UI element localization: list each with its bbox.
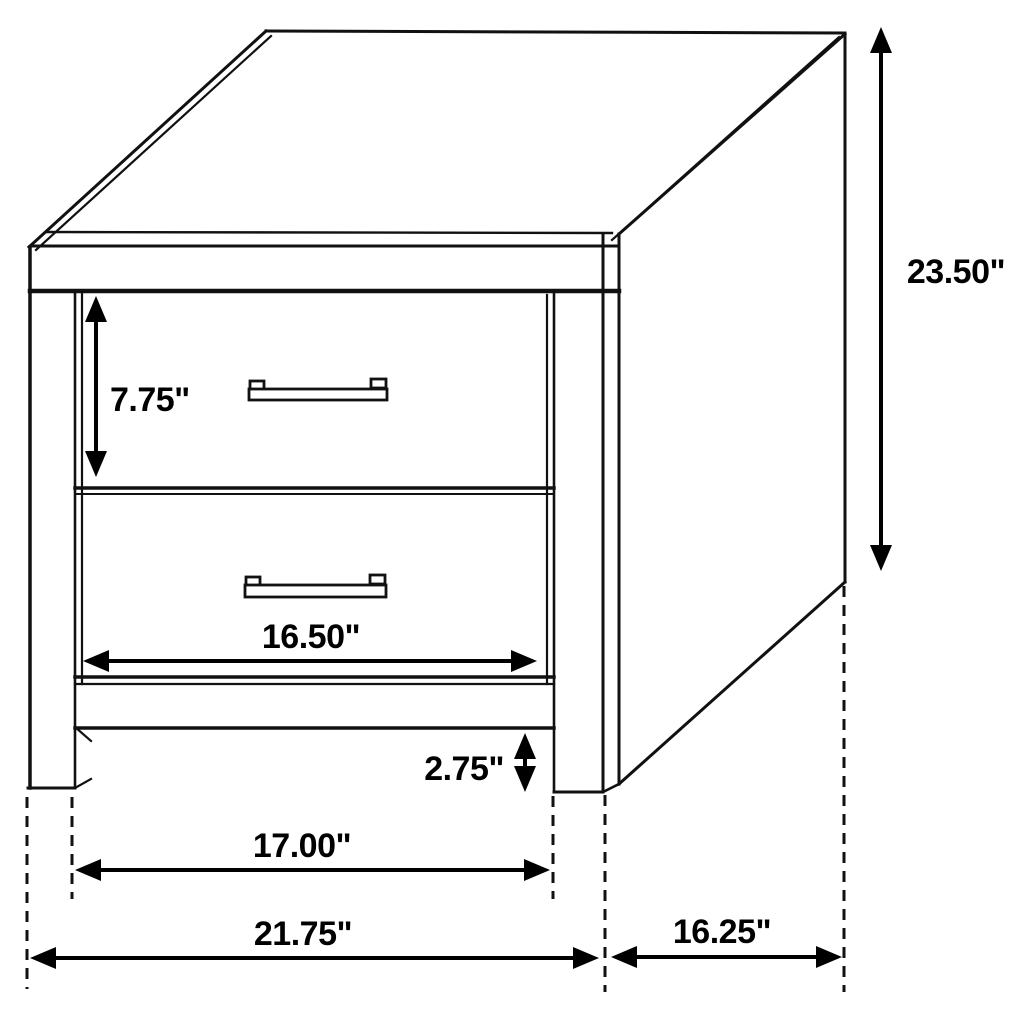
drawer-1-handle bbox=[249, 379, 387, 400]
top-back-edge bbox=[266, 31, 845, 33]
drawer-2-handle bbox=[245, 575, 386, 597]
top-left-edge bbox=[29, 31, 266, 247]
handle-bar bbox=[245, 585, 386, 597]
handle-bar bbox=[249, 389, 387, 400]
left-leg-bottom-bevel bbox=[75, 779, 91, 788]
dimension-foot-height-2-75: 2.75" bbox=[424, 733, 536, 792]
dimension-inner-span-17-00: 17.00" bbox=[75, 827, 550, 881]
side-bottom-diagonal-edge bbox=[619, 582, 845, 784]
top-right-edge-inner bbox=[612, 37, 839, 240]
cabinet-front-frame bbox=[28, 247, 619, 792]
arrowhead-left bbox=[611, 946, 637, 968]
arrowhead-up bbox=[514, 733, 536, 759]
dimension-top-drawer-7-75: 7.75" bbox=[85, 296, 190, 477]
dimension-label-overall-width: 21.75" bbox=[254, 915, 352, 953]
arrowhead-down bbox=[870, 545, 892, 571]
dimension-height-23-50: 23.50" bbox=[870, 27, 1005, 571]
arrowhead-down bbox=[85, 451, 107, 477]
dimension-label-drawer-width: 16.50" bbox=[262, 618, 360, 656]
arrowhead-up bbox=[85, 296, 107, 322]
arrowhead-right bbox=[573, 947, 599, 969]
dimension-label-height: 23.50" bbox=[907, 253, 1005, 291]
arrowhead-left bbox=[75, 859, 101, 881]
dimension-label-top-drawer-height: 7.75" bbox=[110, 381, 190, 419]
dimension-label-inner-leg-span: 17.00" bbox=[253, 827, 351, 865]
arrowhead-left bbox=[83, 650, 109, 672]
arrowhead-right bbox=[816, 946, 842, 968]
handle-right-post bbox=[370, 575, 385, 584]
dimension-label-foot-height: 2.75" bbox=[424, 750, 504, 788]
dimension-depth-16-25: 16.25" bbox=[611, 913, 842, 968]
right-leg-bottom-bevel bbox=[603, 784, 619, 792]
arrowhead-left bbox=[30, 947, 56, 969]
arrowhead-up bbox=[870, 27, 892, 53]
handle-right-post bbox=[371, 379, 386, 388]
arrowhead-right bbox=[511, 650, 537, 672]
dimension-diagram: 23.50" 7.75" 16.50" 2.75" 17.00" 21.75" … bbox=[0, 0, 1024, 1024]
top-front-bevel-line bbox=[47, 232, 612, 233]
dimension-label-depth: 16.25" bbox=[673, 913, 771, 951]
arrowhead-right bbox=[524, 859, 550, 881]
dimension-overall-width-21-75: 21.75" bbox=[30, 915, 599, 969]
nightstand-line-drawing: 23.50" 7.75" 16.50" 2.75" 17.00" 21.75" … bbox=[0, 0, 1024, 1024]
cabinet-right-side-panel bbox=[603, 34, 845, 792]
top-left-edge-inner bbox=[36, 36, 271, 250]
dimension-drawer-width-16-50: 16.50" bbox=[83, 618, 537, 672]
cabinet-top-face bbox=[29, 31, 845, 250]
arrowhead-down bbox=[514, 766, 536, 792]
